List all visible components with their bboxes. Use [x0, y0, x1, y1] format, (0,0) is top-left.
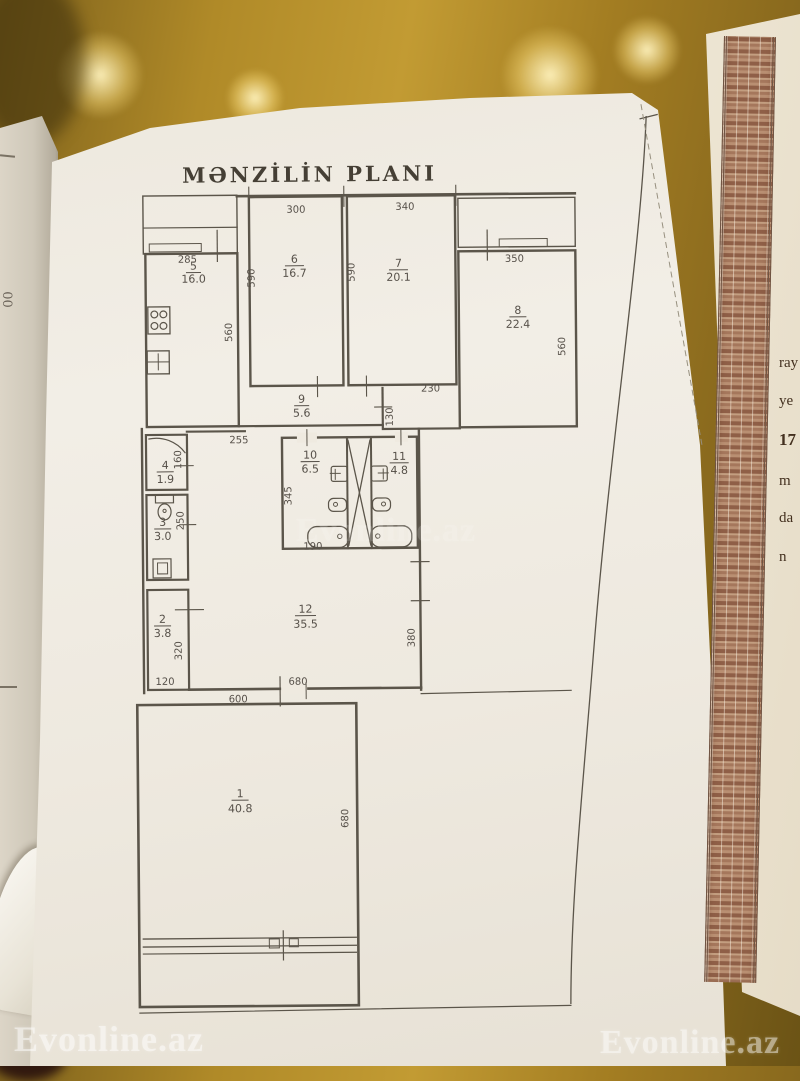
certificate-text-fragment: ray	[779, 355, 798, 372]
underlying-page-mark	[0, 686, 17, 688]
watermark-bottom-left: Evonline.az	[14, 1018, 204, 1060]
certificate-text-fragment: n	[779, 549, 787, 566]
certificate-text-fragment: 17	[779, 430, 796, 450]
certificate-text-fragment: m	[779, 473, 791, 490]
certificate-text-fragment: da	[779, 510, 793, 527]
certificate-text-fragment: ye	[779, 393, 793, 410]
watermark-center: Evonline.az	[296, 512, 476, 550]
underlying-page-text: 00	[0, 291, 14, 308]
watermark-bottom-right: Evonline.az	[600, 1024, 780, 1062]
bokeh-light	[612, 15, 682, 85]
photo-of-floor-plan-document: { "plan": { "title": "MƏNZİLİN PLANI", "…	[0, 0, 800, 1066]
underlying-page-mark	[0, 154, 15, 158]
